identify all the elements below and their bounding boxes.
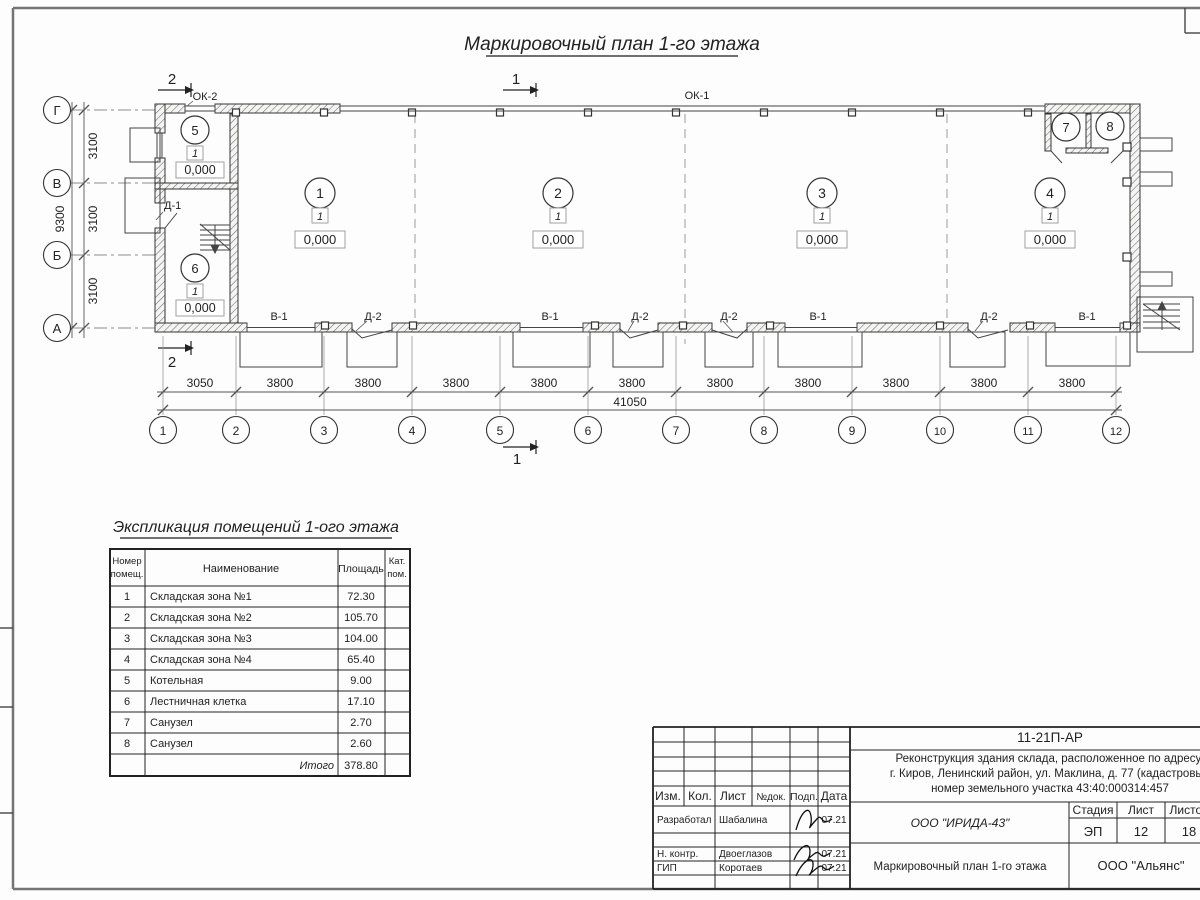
axis-number: 1 — [160, 424, 167, 438]
sheet-value: 12 — [1134, 824, 1148, 839]
hdim-10: 3800 — [1059, 376, 1086, 390]
signer-date: 07.21 — [821, 815, 846, 826]
row-num: 6 — [124, 696, 130, 708]
axis-number: 9 — [849, 424, 856, 438]
section-1-label-bottom: 1 — [513, 451, 521, 468]
frame-margin-ticks — [0, 8, 1200, 813]
section-marks — [158, 83, 539, 454]
row-name: Санузел — [150, 738, 193, 750]
elevation-value: 0,000 — [184, 301, 215, 315]
col-cat-2: пом. — [387, 569, 407, 580]
column-marks — [233, 109, 1132, 329]
drawing-title: Маркировочный план 1-го этажа — [874, 861, 1048, 873]
row-num: 4 — [124, 654, 130, 666]
axis-number: 10 — [934, 426, 946, 438]
axis-number: 11 — [1022, 426, 1033, 438]
row-name: Складская зона №1 — [150, 591, 252, 603]
col-podp: Подп. — [790, 791, 818, 803]
stair-exterior — [1143, 302, 1180, 330]
section-1-label-top: 1 — [512, 71, 520, 88]
row-num: 8 — [124, 738, 130, 750]
plan-title: Маркировочный план 1-го этажа — [464, 34, 760, 55]
section-mark-labels: 2 2 1 1 — [168, 71, 521, 468]
elevation-value: 0,000 — [806, 232, 839, 247]
total-label: Итого — [300, 760, 334, 772]
project-line-1: Реконструкция здания склада, расположенн… — [895, 753, 1200, 765]
stage-sheet-headers: Стадия Лист Листов ЭП 12 18 — [1073, 803, 1200, 839]
building-walls — [155, 104, 1140, 332]
sheet-label: Лист — [1128, 803, 1155, 817]
opening-labels: В-1 Д-2 В-1 Д-2 Д-2 В-1 Д-2 В-1 — [270, 311, 1095, 323]
hdim-6: 3800 — [707, 376, 734, 390]
door-label-d1: Д-1 — [164, 200, 181, 212]
room-number: 4 — [1046, 185, 1054, 201]
sheets-label: Листов — [1170, 803, 1200, 817]
elevation-value: 0,000 — [304, 232, 337, 247]
section-2-label-bottom: 2 — [168, 354, 176, 371]
project-line-2: г. Киров, Ленинский район, ул. Маклина, … — [890, 768, 1200, 780]
doc-number: 11-21П-АР — [1017, 730, 1083, 745]
row-num: 2 — [124, 612, 130, 624]
row-num: 7 — [124, 717, 130, 729]
section-2-label-top: 2 — [168, 71, 176, 88]
row-area: 17.10 — [347, 696, 375, 708]
hdim-total: 41050 — [613, 395, 647, 409]
row-num: 1 — [124, 591, 130, 603]
row-area: 104.00 — [344, 633, 378, 645]
signer-date: 07.21 — [821, 849, 846, 860]
axis-letter: В — [53, 176, 62, 191]
explication-table: Номер помещ. Наименование Площадь Кат. п… — [110, 549, 410, 776]
opening-label-v1-1: В-1 — [270, 311, 287, 323]
hdim-9: 3800 — [971, 376, 998, 390]
window-label-ok1: ОК-1 — [685, 90, 710, 102]
vdim-3100-1: 3100 — [86, 132, 100, 159]
room-number: 1 — [316, 185, 324, 201]
signer-role: ГИП — [657, 863, 677, 874]
total-area: 378.80 — [344, 760, 378, 772]
project-line-3: номер земельного участка 43:40:000314:45… — [931, 783, 1169, 795]
signer-role: Разработал — [657, 814, 712, 826]
col-name: Наименование — [203, 563, 279, 575]
col-doc: №док. — [756, 792, 785, 803]
horizontal-dimension-labels: 3050 3800 3800 3800 3800 3800 3800 3800 … — [187, 376, 1086, 409]
row-num: 3 — [124, 633, 130, 645]
room-number: 7 — [1062, 120, 1069, 135]
row-name: Складская зона №4 — [150, 654, 252, 666]
vdim-3100-2: 3100 — [86, 205, 100, 232]
elevation-value: 0,000 — [1034, 232, 1067, 247]
type-mark: 1 — [819, 211, 825, 223]
room-number: 3 — [818, 185, 826, 201]
row-area: 72.30 — [347, 591, 375, 603]
title-block: Изм. Кол. Лист №док. Подп. Дата Разработ… — [653, 727, 1200, 889]
type-mark: 1 — [317, 211, 323, 223]
row-name: Санузел — [150, 717, 193, 729]
floor-plan-drawing: Маркировочный план 1-го этажа — [0, 0, 1200, 900]
opening-label-v1-4: В-1 — [1078, 311, 1095, 323]
vdim-3100-3: 3100 — [86, 277, 100, 304]
stage-label: Стадия — [1073, 803, 1114, 817]
row-name: Складская зона №2 — [150, 612, 252, 624]
type-mark: 1 — [555, 211, 561, 223]
col-num-1: Номер — [112, 556, 141, 567]
hdim-3: 3800 — [443, 376, 470, 390]
elevation-value: 0,000 — [184, 163, 215, 177]
type-mark: 1 — [1047, 211, 1053, 223]
room-number: 6 — [191, 261, 198, 276]
hdim-1: 3800 — [267, 376, 294, 390]
room-annotations: 1 1 0,000 2 1 0,000 3 1 0,000 4 1 0,000 … — [176, 112, 1124, 316]
sheets-value: 18 — [1182, 824, 1196, 839]
type-mark: 1 — [192, 148, 198, 160]
signer-role: Н. контр. — [657, 849, 698, 860]
axis-number: 5 — [497, 424, 504, 438]
axis-number: 12 — [1110, 426, 1122, 438]
row-area: 65.40 — [347, 654, 375, 666]
stair-room6 — [200, 224, 230, 253]
axis-number: 3 — [321, 424, 328, 438]
elevation-value: 0,000 — [542, 232, 575, 247]
col-data: Дата — [821, 789, 848, 803]
row-num: 5 — [124, 675, 130, 687]
axis-letter: Б — [53, 248, 62, 263]
row-area: 105.70 — [344, 612, 378, 624]
axis-letter: Г — [53, 103, 60, 118]
stage-value: ЭП — [1084, 824, 1103, 839]
hdim-5: 3800 — [619, 376, 646, 390]
explication-header: Номер помещ. Наименование Площадь Кат. п… — [111, 556, 407, 580]
zone-dashed-lines — [415, 114, 947, 344]
room-number: 2 — [554, 185, 562, 201]
col-cat-1: Кат. — [389, 556, 406, 567]
hdim-8: 3800 — [883, 376, 910, 390]
signer-name: Двоеглазов — [719, 849, 772, 860]
opening-label-v1-3: В-1 — [809, 311, 826, 323]
col-list: Лист — [720, 789, 747, 803]
row-name: Складская зона №3 — [150, 633, 252, 645]
axis-number: 8 — [761, 424, 768, 438]
row-name: Котельная — [150, 675, 203, 687]
ok2-leader — [187, 101, 193, 106]
room-number: 5 — [191, 123, 198, 138]
axis-number: 6 — [585, 424, 592, 438]
explication-title: Экспликация помещений 1-ого этажа — [113, 519, 399, 536]
axis-number: 2 — [233, 424, 240, 438]
vdim-total-9300: 9300 — [53, 205, 67, 232]
hdim-7: 3800 — [795, 376, 822, 390]
hdim-0: 3050 — [187, 376, 214, 390]
row-area: 9.00 — [350, 675, 371, 687]
col-num-2: помещ. — [111, 569, 144, 580]
customer-org: ООО "Альянс" — [1098, 858, 1185, 873]
axis-letter: А — [53, 321, 62, 336]
explication-rows: 1 Складская зона №1 72.30 2 Складская зо… — [124, 591, 378, 772]
axis-number-circles: 1 2 3 4 5 6 7 8 9 10 11 12 — [150, 417, 1130, 444]
row-area: 2.60 — [350, 738, 371, 750]
axis-number: 7 — [673, 424, 680, 438]
hdim-2: 3800 — [355, 376, 382, 390]
axis-number: 4 — [409, 424, 416, 438]
designer-org: ООО "ИРИДА-43" — [911, 816, 1011, 830]
col-kol: Кол. — [688, 789, 712, 803]
row-name: Лестничная клетка — [150, 696, 247, 708]
hdim-4: 3800 — [531, 376, 558, 390]
vertical-dimension-labels: 3100 3100 3100 9300 — [53, 132, 100, 304]
window-label-ok2: ОК-2 — [193, 91, 218, 103]
type-mark: 1 — [192, 286, 198, 298]
col-area: Площадь — [338, 563, 384, 575]
signer-name: Коротаев — [719, 863, 762, 874]
drawing-sheet: Маркировочный план 1-го этажа — [0, 0, 1200, 900]
col-izm: Изм. — [655, 789, 681, 803]
room-number: 8 — [1106, 119, 1113, 134]
project-description: Реконструкция здания склада, расположенн… — [890, 753, 1200, 795]
window-symbols — [157, 104, 1120, 332]
signer-name: Шабалина — [719, 814, 768, 826]
row-area: 2.70 — [350, 717, 371, 729]
opening-label-v1-2: В-1 — [541, 311, 558, 323]
axis-leader-lines — [70, 110, 157, 328]
